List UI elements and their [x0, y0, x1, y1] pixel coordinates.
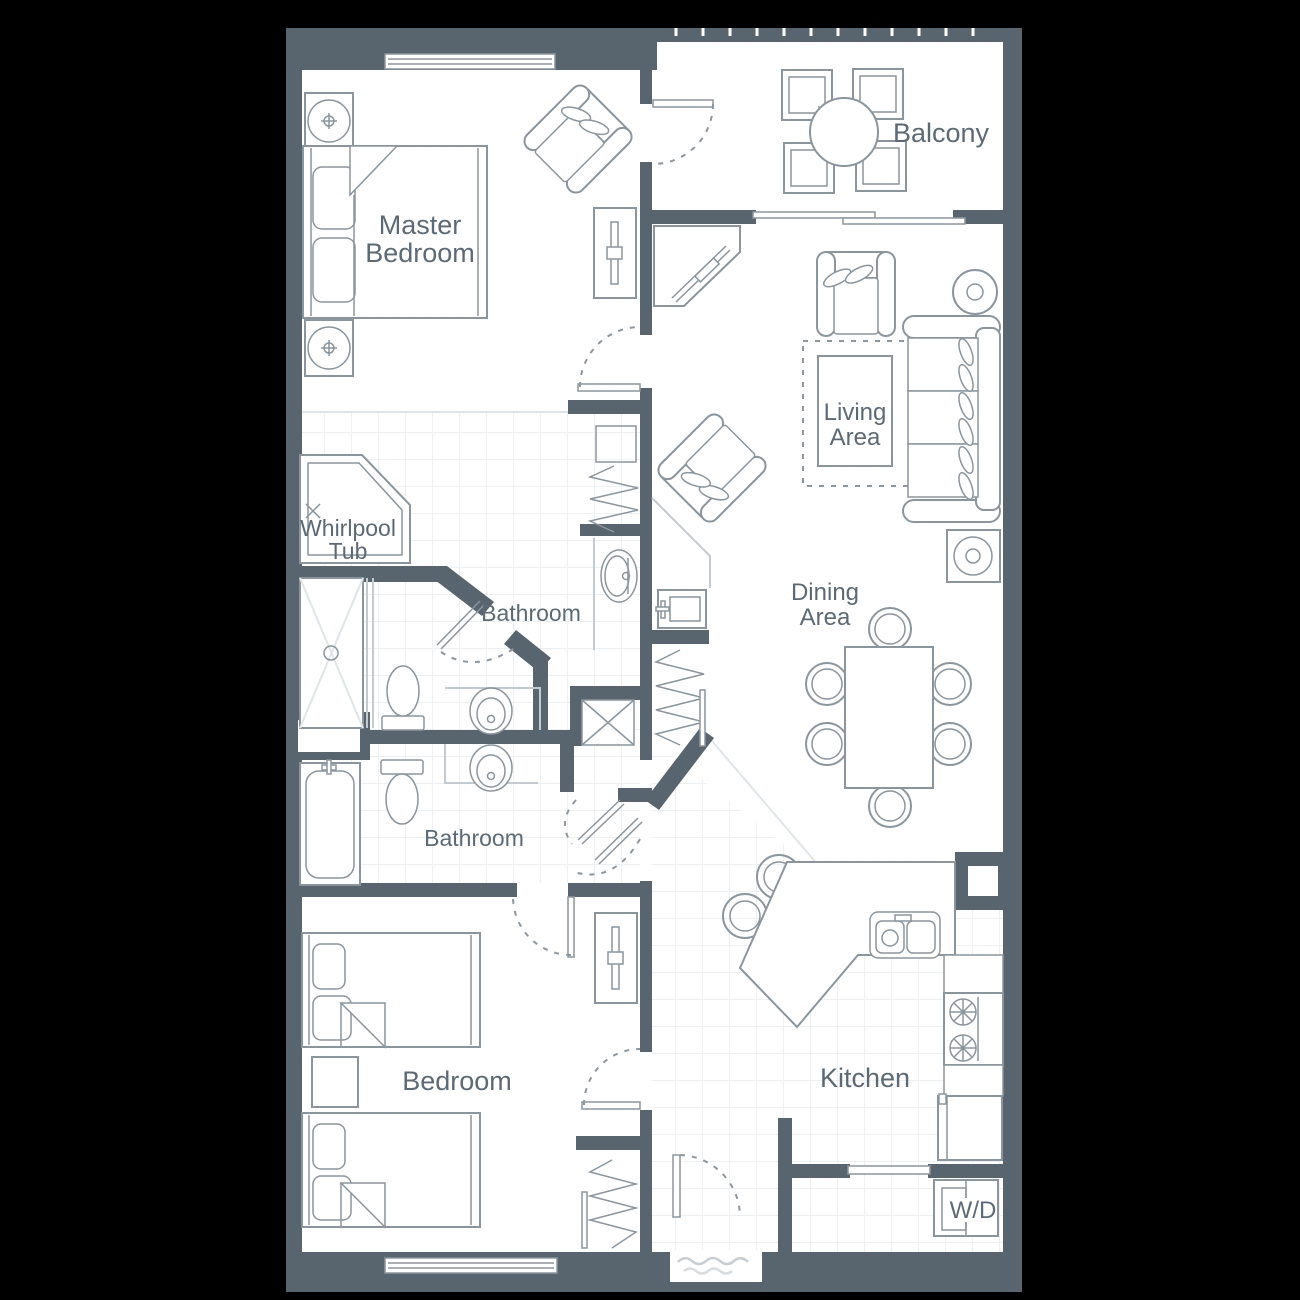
label-kitchen: Kitchen [820, 1063, 910, 1093]
pillow [313, 1124, 345, 1169]
balcony-sliding-door [843, 218, 965, 224]
dresser-mirror [595, 913, 637, 1003]
burner-icon [950, 999, 976, 1025]
label-dining-area: Dining [791, 579, 859, 606]
patio-table [810, 98, 878, 166]
balcony-sliding-door [753, 212, 875, 218]
svg-text:Bedroom: Bedroom [365, 238, 475, 268]
balcony-railing [653, 28, 1003, 42]
svg-text:Area: Area [830, 424, 881, 451]
label-living-area: Living [824, 399, 887, 426]
label-bedroom: Bedroom [402, 1066, 512, 1096]
master-door-leaf [578, 384, 640, 391]
armchair [817, 252, 895, 336]
sink [470, 745, 512, 791]
pillow [313, 238, 355, 302]
nightstand-lamp-icon [305, 320, 353, 376]
counter [944, 955, 1003, 993]
floor-plan-canvas: Master Bedroom Balcony Living Area Dinin… [0, 0, 1300, 1300]
door-leaf [582, 1102, 640, 1109]
counter [944, 1065, 1003, 1096]
master-bedroom-window [385, 54, 555, 69]
pillow [313, 167, 355, 229]
bathtub [300, 763, 360, 885]
pillow [313, 944, 345, 989]
dining-table [845, 647, 933, 788]
bedroom-window [385, 1258, 557, 1273]
kitchen-sink [870, 912, 940, 958]
floor-plan: Master Bedroom Balcony Living Area Dinin… [0, 0, 1300, 1300]
nightstand-lamp-icon [305, 93, 353, 149]
fridge-handle [939, 1094, 946, 1104]
entry-door-leaf [673, 1155, 680, 1217]
label-bathroom-master: Bathroom [481, 600, 581, 626]
svg-text:Tub: Tub [329, 538, 368, 564]
balcony-door-leaf [653, 100, 713, 107]
label-bathroom-guest: Bathroom [424, 825, 524, 851]
entry-threshold [670, 1250, 762, 1282]
nightstand [312, 1057, 358, 1107]
svg-text:Area: Area [800, 604, 851, 631]
hall-sink [601, 550, 637, 602]
label-washer-dryer: W/D [950, 1197, 997, 1224]
label-balcony: Balcony [893, 118, 990, 148]
burner-icon [950, 1035, 976, 1061]
door-leaf [568, 897, 574, 957]
label-master-bedroom: Master [379, 210, 462, 240]
dresser-mirror [594, 208, 636, 298]
laundry-pocket-door [848, 1166, 930, 1174]
sink [470, 688, 512, 734]
